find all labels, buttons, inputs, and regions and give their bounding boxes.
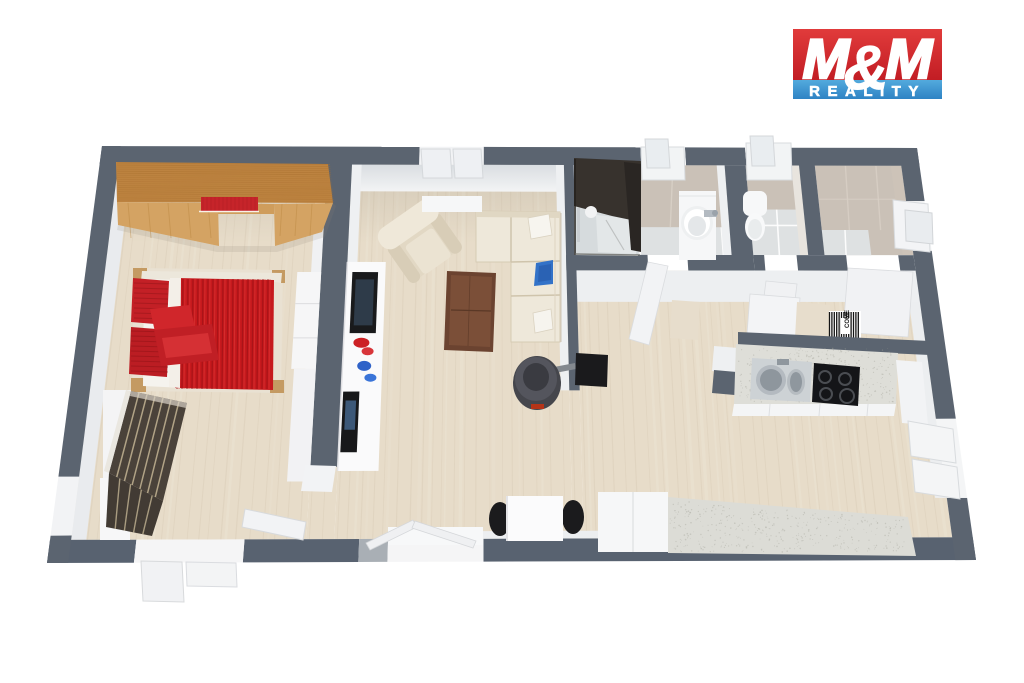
svg-text:M: M [886, 27, 934, 90]
svg-text:COME: COME [845, 310, 851, 328]
svg-text:REALITY: REALITY [809, 83, 926, 100]
